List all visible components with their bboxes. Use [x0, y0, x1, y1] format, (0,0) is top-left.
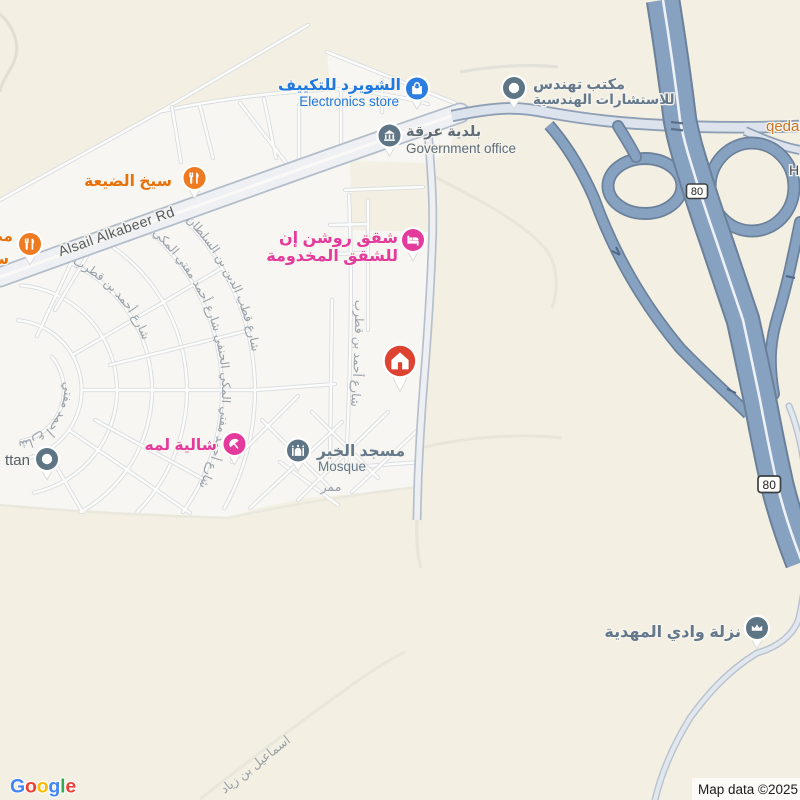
svg-text:ممر: ممر [320, 480, 342, 495]
svg-text:مطعم: مطعم [0, 228, 13, 245]
svg-text:Mosque: Mosque [318, 459, 366, 474]
svg-text:مكتب تهندس: مكتب تهندس [533, 77, 625, 93]
svg-text:للشقق المخدومة: للشقق المخدومة [266, 248, 398, 265]
svg-text:مسجد الخير: مسجد الخير [316, 443, 405, 460]
svg-text:Electronics store: Electronics store [299, 94, 399, 109]
svg-text:نزلة وادي المهدية: نزلة وادي المهدية [604, 624, 741, 642]
svg-text:80: 80 [763, 478, 777, 492]
svg-text:شالية لمه: شالية لمه [144, 437, 217, 454]
svg-text:qedah: qedah [766, 118, 800, 135]
svg-text:سيخ الضيعة: سيخ الضيعة [84, 173, 172, 190]
svg-text:Hi: Hi [789, 162, 800, 178]
svg-text:سفرة: سفرة [0, 251, 9, 268]
svg-text:ttan: ttan [5, 452, 30, 469]
svg-text:الشويرد للتكييف: الشويرد للتكييف [278, 77, 401, 94]
svg-text:Government office: Government office [406, 141, 516, 156]
svg-text:80: 80 [691, 186, 703, 198]
svg-text:Map data ©2025: Map data ©2025 [698, 782, 798, 797]
svg-text:للاستشارات الهندسية: للاستشارات الهندسية [533, 92, 675, 107]
svg-text:شقق روشن إن: شقق روشن إن [279, 230, 398, 247]
svg-text:بلدية عرقة: بلدية عرقة [406, 124, 481, 140]
svg-text:Google: Google [10, 776, 76, 798]
